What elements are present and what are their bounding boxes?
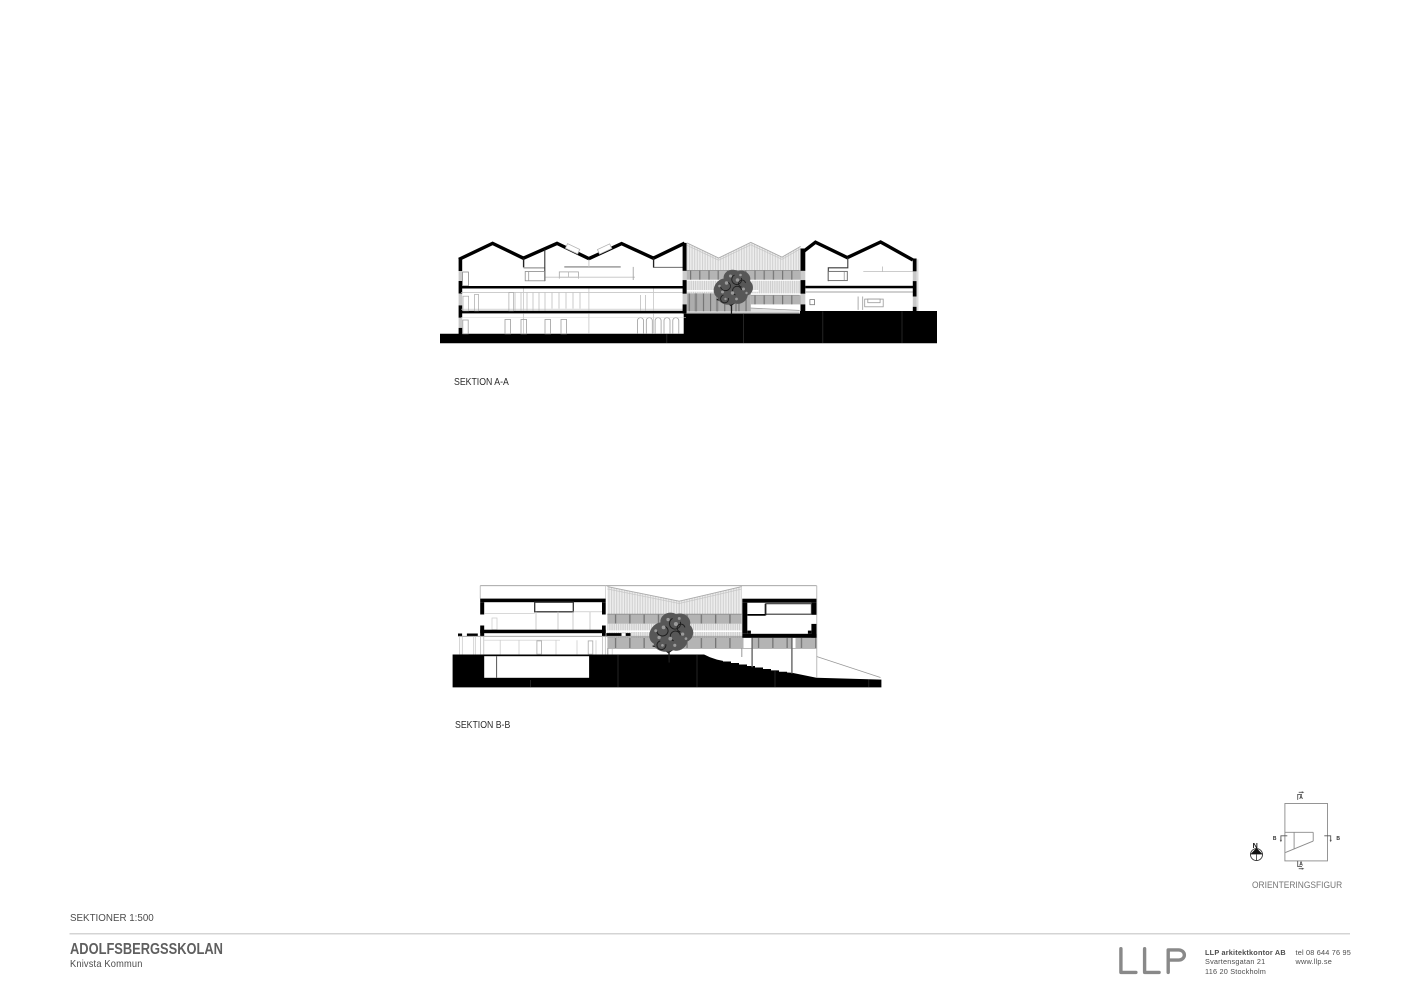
svg-text:A: A bbox=[1299, 795, 1303, 801]
svg-text:N: N bbox=[1253, 841, 1258, 850]
svg-text:B: B bbox=[1273, 836, 1277, 842]
svg-text:A: A bbox=[1299, 862, 1303, 868]
svg-text:B: B bbox=[1336, 836, 1340, 842]
